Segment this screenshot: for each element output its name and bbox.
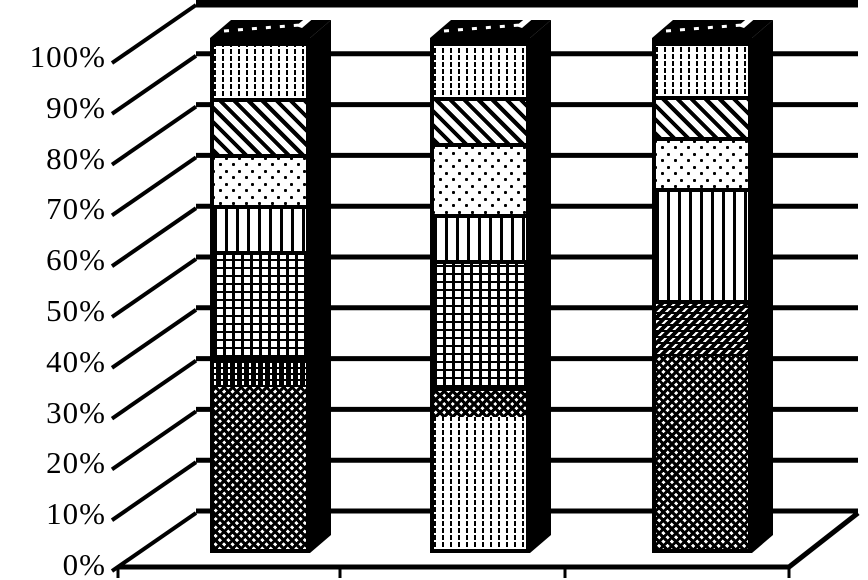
bar-column-2 [430, 38, 530, 553]
bar-segment-dark-vertical-dash [214, 357, 306, 387]
bar-segment-diagonal-stripes [214, 98, 306, 154]
bar-segment-vertical-dashes [214, 42, 306, 98]
bar-segment-vertical-lines [214, 205, 306, 251]
bar-segment-dots [434, 143, 526, 214]
chart-canvas: 0%10%20%30%40%50%60%70%80%90%100% [0, 0, 868, 580]
bars-layer [0, 0, 868, 580]
bar-segment-vertical-dashes [434, 42, 526, 97]
bar-segment-vertical-dashes [434, 417, 526, 549]
bar-segment-dots [656, 137, 748, 188]
bar-segment-vertical-lines [656, 188, 748, 300]
bar-column-3 [652, 38, 752, 553]
bar-segment-vertical-lines [434, 214, 526, 260]
bar-segment-dark-diagonal [656, 300, 748, 356]
bar-column-1 [210, 38, 310, 553]
bar-segment-diagonal-stripes [656, 96, 748, 137]
bar-segment-diagonal-stripes [434, 97, 526, 143]
bar-segment-dots [214, 154, 306, 205]
bar-segment-dense-crosshatch [214, 387, 306, 549]
bar-segment-dense-crosshatch [434, 387, 526, 417]
bar-segment-vertical-dashes [656, 42, 748, 96]
bar-segment-dense-crosshatch [656, 356, 748, 549]
bar-segment-grid [434, 260, 526, 387]
bar-segment-grid [214, 251, 306, 357]
